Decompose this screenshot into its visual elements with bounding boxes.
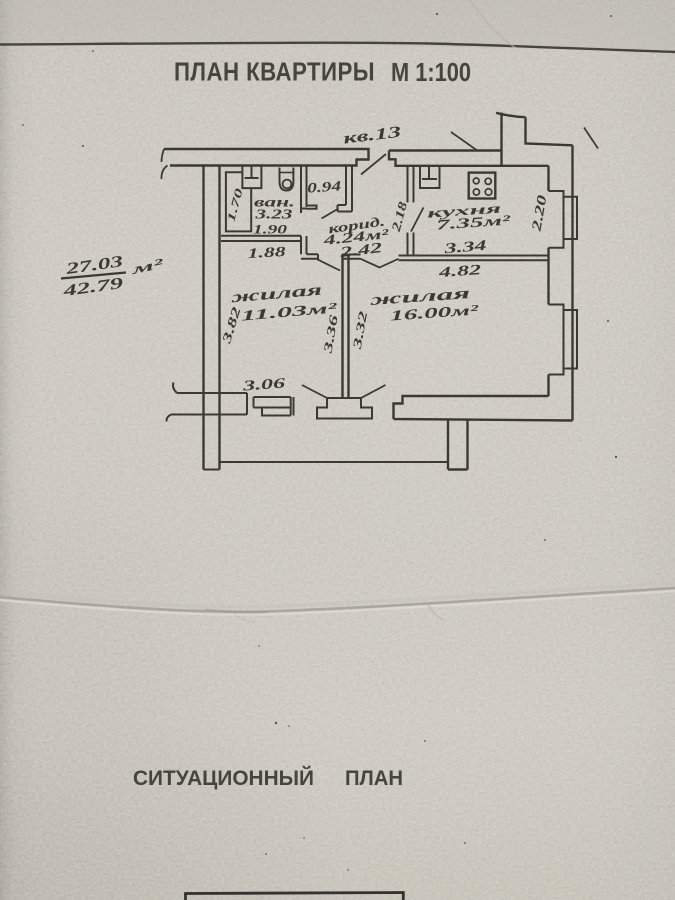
svg-text:0.94: 0.94 [307,179,342,196]
svg-text:М 1:100: М 1:100 [391,57,471,87]
svg-text:4.82: 4.82 [437,262,482,281]
svg-text:3.23: 3.23 [254,207,293,222]
svg-text:1.88: 1.88 [247,245,286,262]
svg-text:3.06: 3.06 [241,375,287,394]
svg-text:ПЛАН КВАРТИРЫ: ПЛАН КВАРТИРЫ [174,57,375,87]
svg-text:ПЛАН: ПЛАН [345,766,403,790]
svg-text:СИТУАЦИОННЫЙ: СИТУАЦИОННЫЙ [133,765,314,790]
svg-text:1.90: 1.90 [253,223,288,237]
